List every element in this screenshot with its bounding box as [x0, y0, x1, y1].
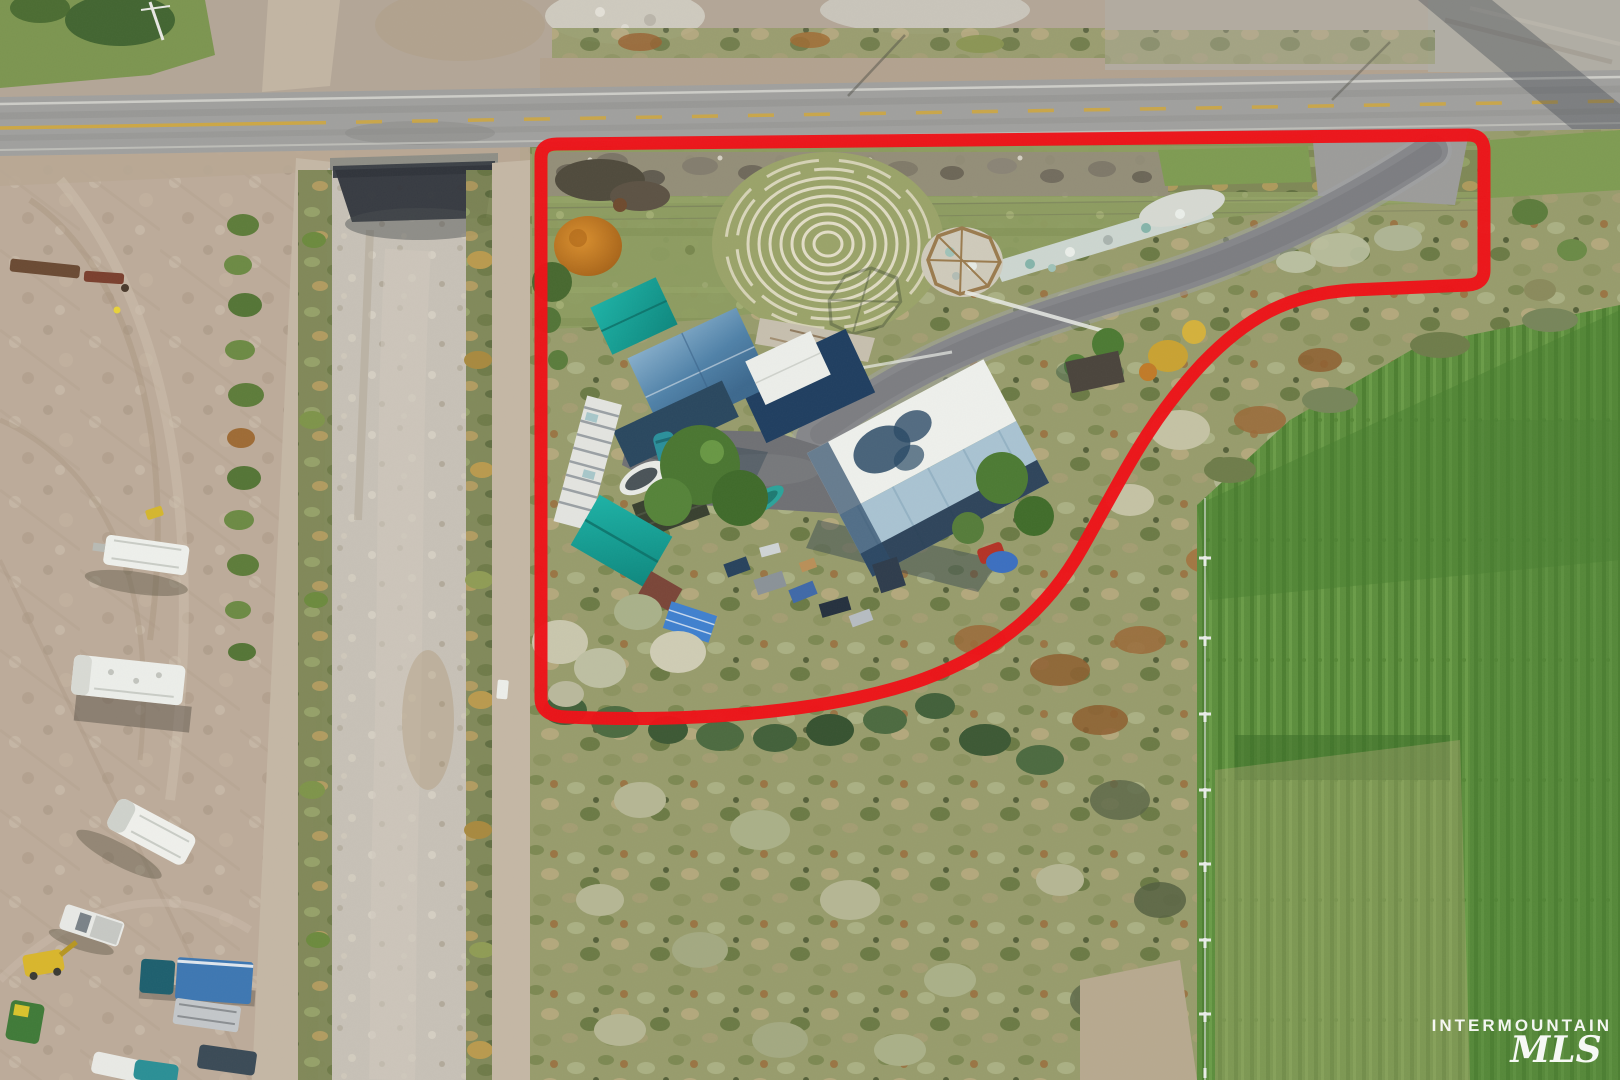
aerial-photo: INTERMOUNTAIN MLS: [0, 0, 1620, 1080]
aerial-photo-canvas: INTERMOUNTAIN MLS: [0, 0, 1620, 1080]
watermark-mls: MLS: [1508, 1029, 1601, 1071]
photo-grain: [0, 0, 1620, 1080]
